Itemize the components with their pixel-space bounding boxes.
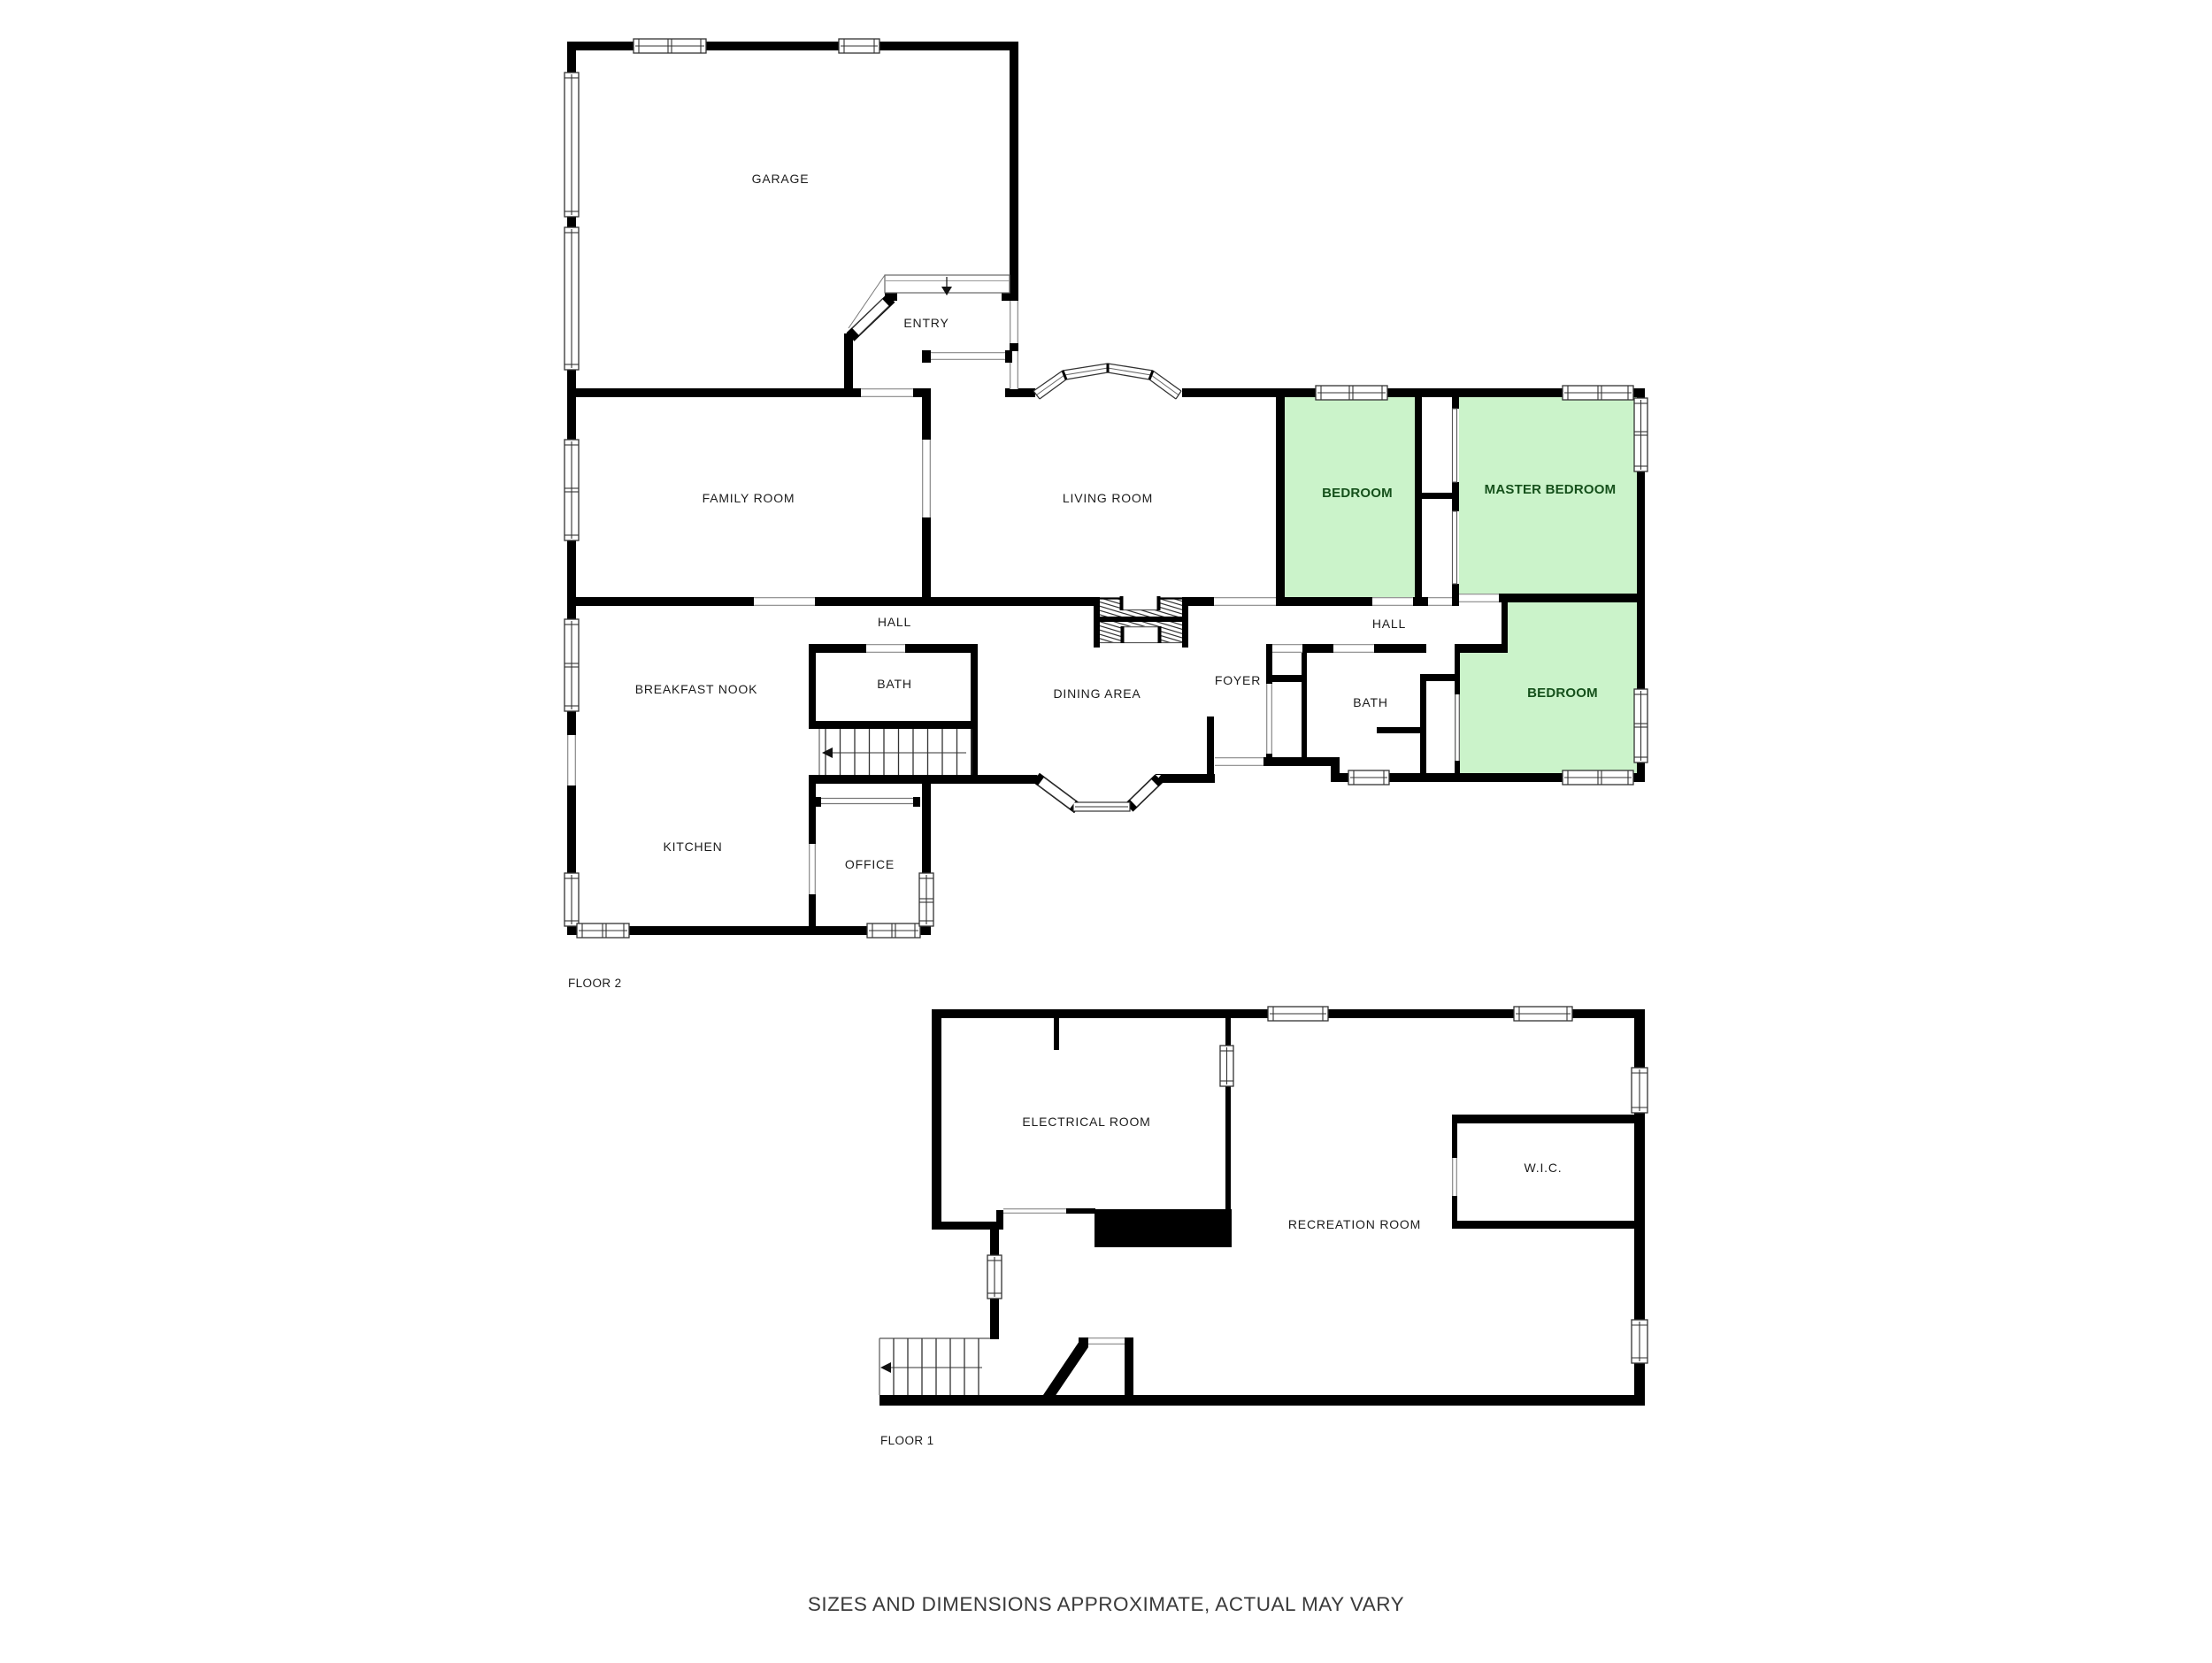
svg-text:BREAKFAST NOOK: BREAKFAST NOOK	[635, 682, 758, 696]
svg-text:GARAGE: GARAGE	[752, 172, 810, 186]
svg-text:ELECTRICAL ROOM: ELECTRICAL ROOM	[1022, 1115, 1150, 1129]
svg-text:W.I.C.: W.I.C.	[1525, 1161, 1563, 1175]
svg-text:MASTER BEDROOM: MASTER BEDROOM	[1485, 482, 1617, 497]
svg-text:FLOOR 1: FLOOR 1	[880, 1434, 934, 1447]
svg-text:RECREATION ROOM: RECREATION ROOM	[1288, 1217, 1421, 1231]
svg-text:DINING AREA: DINING AREA	[1053, 686, 1141, 701]
svg-text:ENTRY: ENTRY	[903, 316, 949, 330]
svg-text:BEDROOM: BEDROOM	[1322, 486, 1393, 501]
svg-text:OFFICE: OFFICE	[845, 857, 895, 871]
svg-text:FOYER: FOYER	[1215, 673, 1261, 687]
svg-text:FLOOR 2: FLOOR 2	[568, 977, 622, 990]
svg-text:HALL: HALL	[878, 615, 911, 629]
svg-text:SIZES AND DIMENSIONS APPROXIMA: SIZES AND DIMENSIONS APPROXIMATE, ACTUAL…	[808, 1593, 1404, 1615]
svg-text:LIVING ROOM: LIVING ROOM	[1063, 491, 1153, 505]
svg-text:BEDROOM: BEDROOM	[1527, 686, 1598, 701]
svg-text:HALL: HALL	[1372, 617, 1406, 631]
svg-text:BATH: BATH	[877, 677, 912, 691]
svg-text:KITCHEN: KITCHEN	[663, 839, 722, 854]
svg-text:FAMILY ROOM: FAMILY ROOM	[703, 491, 795, 505]
svg-text:BATH: BATH	[1353, 695, 1388, 709]
